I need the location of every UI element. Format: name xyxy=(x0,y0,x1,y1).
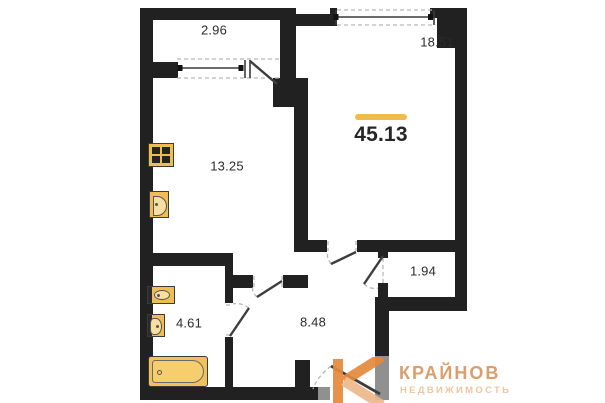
kitchen-sink-drain xyxy=(155,203,158,206)
wall-right xyxy=(455,8,467,310)
wall-living-bottom-right xyxy=(357,240,467,252)
stove-icon xyxy=(148,143,174,167)
wall-kitchen-living-corner xyxy=(273,78,308,107)
total-area-accent-line xyxy=(355,114,407,120)
bathroom-area-label: 4.61 xyxy=(176,316,202,331)
wall-bathroom-top xyxy=(140,253,233,266)
living-door-arc xyxy=(327,252,331,264)
toilet-icon xyxy=(147,314,165,337)
total-area-label: 45.13 xyxy=(354,123,408,147)
floor-plan: 2.96 18.51 13.25 1.94 4.61 8.48 45.13 КР… xyxy=(0,0,605,403)
wall-kitchen-bottom-left xyxy=(228,275,253,288)
watermark-brand-text: КРАЙНОВ xyxy=(399,363,500,384)
washbasin-wall-edge xyxy=(148,287,152,303)
wall-bay-right-stub xyxy=(430,8,437,18)
watermark-tagline-text: НЕДВИЖИМОСТЬ xyxy=(400,385,511,396)
stove-burners xyxy=(152,147,170,163)
toilet-drain xyxy=(156,325,159,328)
balcony-window-end-right xyxy=(239,65,244,71)
balcony-window-end-left xyxy=(178,65,183,71)
wall-balcony-right xyxy=(280,8,296,78)
bathtub-icon xyxy=(148,356,208,387)
storage-door-arc xyxy=(364,284,378,289)
washbasin-drain xyxy=(157,294,160,297)
wall-storage-bottom xyxy=(375,297,467,311)
storage-door-leaf xyxy=(364,256,383,284)
kitchen-sink-basin xyxy=(153,196,167,216)
washbasin-icon xyxy=(147,286,175,304)
wall-bay-left-stub xyxy=(330,8,337,18)
kitchen-door-leaf xyxy=(257,281,282,297)
wall-living-bottom-left xyxy=(294,240,327,252)
wall-balcony-top xyxy=(140,8,296,20)
kitchen-sink-icon xyxy=(149,191,169,218)
wall-storage-door-stub-top xyxy=(378,252,388,258)
bathroom-door-arc xyxy=(233,304,249,309)
kitchen-door-arc xyxy=(253,287,258,297)
storage-area-label: 1.94 xyxy=(410,264,436,279)
wall-bathroom-right-lower xyxy=(225,337,233,387)
bathroom-door-leaf xyxy=(230,308,249,336)
balcony-area-label: 2.96 xyxy=(201,23,227,38)
wall-entrance-stub xyxy=(295,360,310,387)
bathtub-drain xyxy=(157,370,162,375)
living-area-label: 18.51 xyxy=(420,35,454,50)
living-door-leaf xyxy=(331,252,356,264)
wall-storage-door-stub-bottom xyxy=(378,283,388,297)
kitchen-area-label: 13.25 xyxy=(210,159,244,174)
wall-balcony-left-junction xyxy=(140,62,178,78)
hallway-area-label: 8.48 xyxy=(300,315,326,330)
wall-bottom xyxy=(140,387,330,400)
wall-kitchen-bottom-right xyxy=(283,275,308,288)
wall-kitchen-living xyxy=(294,107,308,252)
